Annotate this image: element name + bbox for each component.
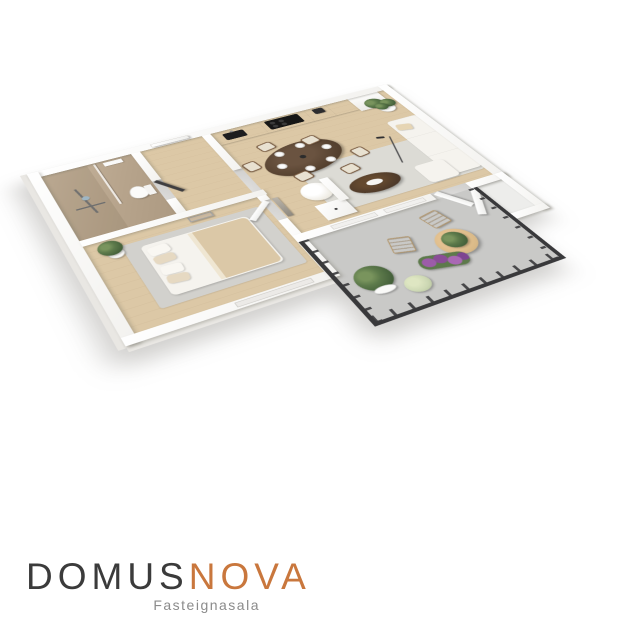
dresser-handle xyxy=(334,208,338,210)
burner xyxy=(281,122,288,126)
logo-wordmark: DOMUSNOVA xyxy=(26,558,266,595)
logo-tagline: Fasteignasala xyxy=(26,597,266,613)
logo-text-nova: NOVA xyxy=(189,556,311,597)
faucet xyxy=(229,130,234,132)
floor-plan-3d-render xyxy=(27,84,612,417)
logo: DOMUSNOVA Fasteignasala xyxy=(26,558,266,613)
burner xyxy=(272,124,280,128)
logo-text-domus: DOMUS xyxy=(26,556,189,597)
page: DOMUSNOVA Fasteignasala xyxy=(0,0,620,620)
